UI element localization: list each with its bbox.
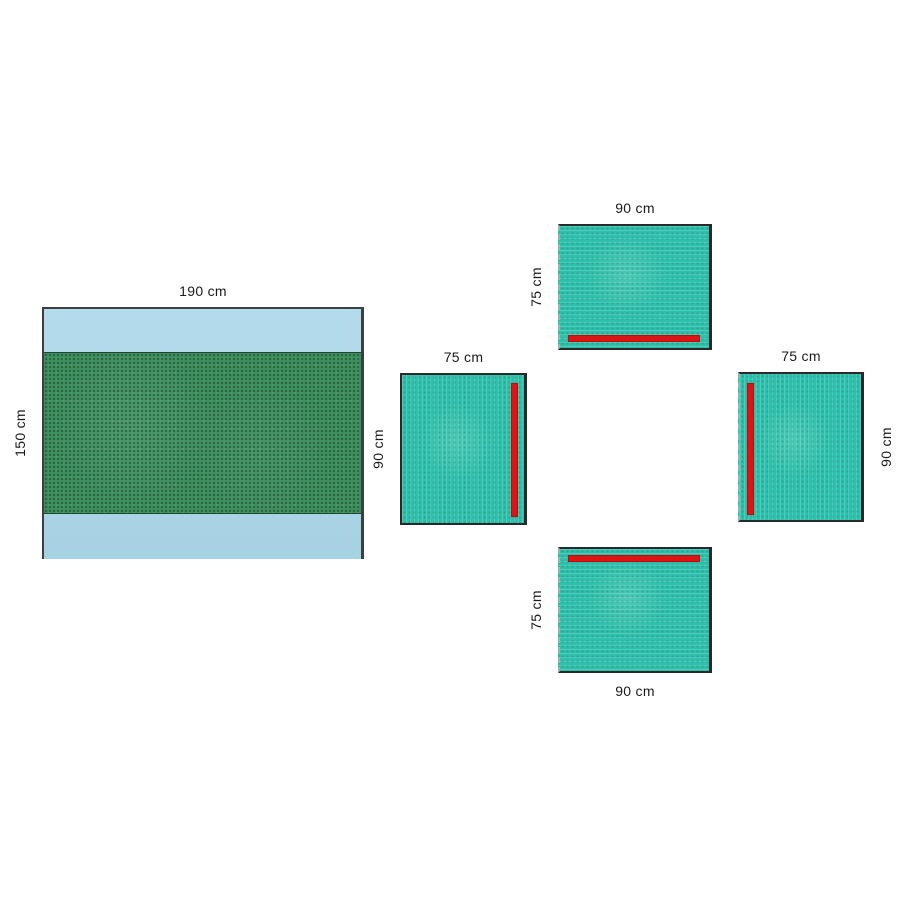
adhesive-drape-top: 90 cm 75 cm bbox=[558, 224, 712, 350]
height-label: 75 cm bbox=[528, 590, 544, 630]
height-label: 150 cm bbox=[12, 409, 28, 457]
drape-sheet bbox=[558, 224, 712, 350]
adhesive-strip bbox=[568, 555, 700, 562]
drape-set-diagram: 190 cm 150 cm 90 cm 75 cm 75 cm 90 cm 75… bbox=[0, 0, 900, 900]
width-label: 75 cm bbox=[400, 349, 527, 365]
table-cover-drape: 190 cm 150 cm bbox=[42, 307, 364, 559]
height-label: 75 cm bbox=[528, 267, 544, 307]
adhesive-strip bbox=[568, 335, 700, 342]
adhesive-drape-bottom: 75 cm 90 cm bbox=[558, 547, 712, 673]
height-label: 90 cm bbox=[878, 427, 894, 467]
absorbent-zone bbox=[44, 352, 361, 514]
adhesive-strip bbox=[511, 383, 518, 517]
drape-sheet bbox=[738, 372, 864, 522]
width-label: 90 cm bbox=[558, 200, 712, 216]
width-label: 190 cm bbox=[42, 283, 364, 299]
adhesive-drape-left: 75 cm 90 cm bbox=[400, 373, 527, 525]
width-label: 75 cm bbox=[738, 348, 864, 364]
table-cover-sheet bbox=[42, 307, 364, 559]
adhesive-drape-right: 75 cm 90 cm bbox=[738, 372, 864, 522]
drape-sheet bbox=[558, 547, 712, 673]
width-label: 90 cm bbox=[558, 683, 712, 699]
drape-sheet bbox=[400, 373, 527, 525]
height-label: 90 cm bbox=[370, 429, 386, 469]
adhesive-strip bbox=[747, 383, 754, 515]
